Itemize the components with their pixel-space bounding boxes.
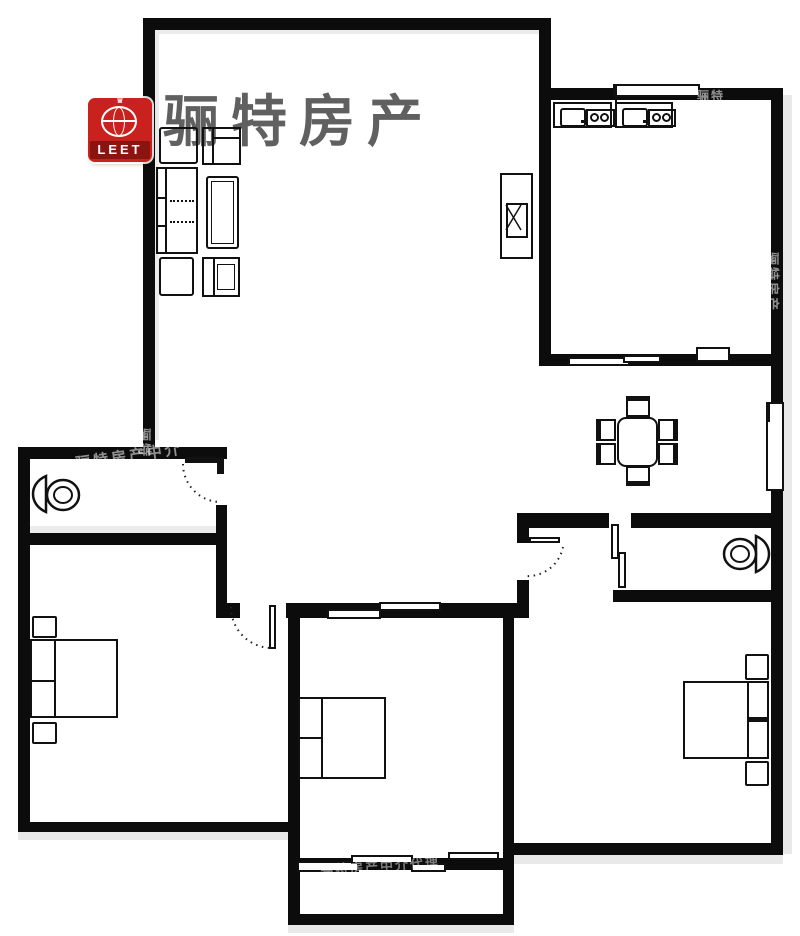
bedroom3-door-swing-arc xyxy=(525,547,563,576)
floor-plan: 骊特房产 xyxy=(0,0,800,936)
logo-band-text: LEET xyxy=(90,141,150,159)
watermark-text: 骊特 xyxy=(136,428,155,458)
crown-icon: ♛ xyxy=(88,96,152,106)
toilet-icon xyxy=(33,476,79,512)
globe-icon xyxy=(101,106,137,137)
bedroom1-door-swing-arc xyxy=(231,607,272,648)
toilet-icon xyxy=(724,536,769,572)
agency-logo: ♛ LEET xyxy=(88,98,152,162)
watermark-text: 骊特房产 xyxy=(764,252,783,312)
tv-speaker-lines xyxy=(506,205,521,230)
watermark-text: 骊特 xyxy=(697,87,725,104)
bathroom1-door-swing-arc xyxy=(183,464,221,502)
